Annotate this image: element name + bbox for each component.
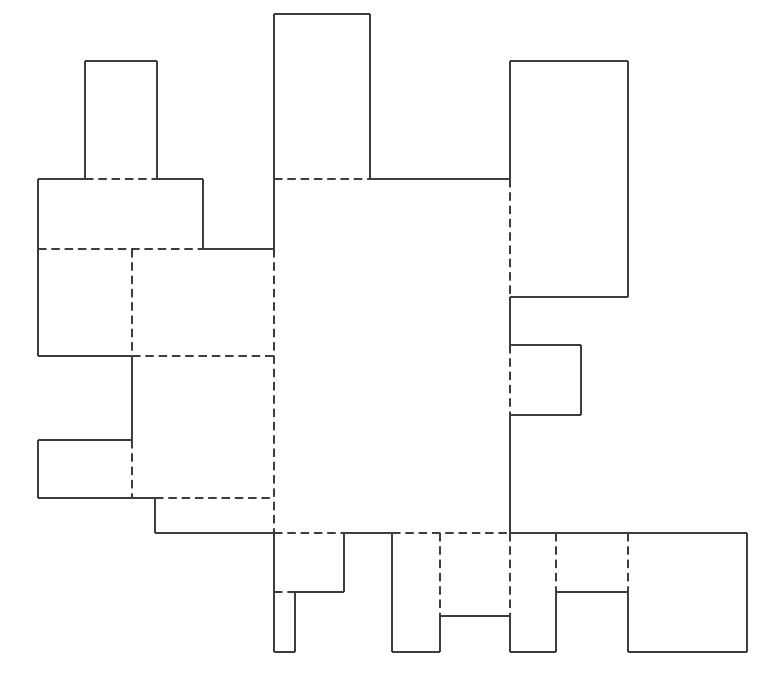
box-net-dieline-diagram bbox=[0, 0, 768, 685]
diagram-stage bbox=[0, 0, 768, 685]
